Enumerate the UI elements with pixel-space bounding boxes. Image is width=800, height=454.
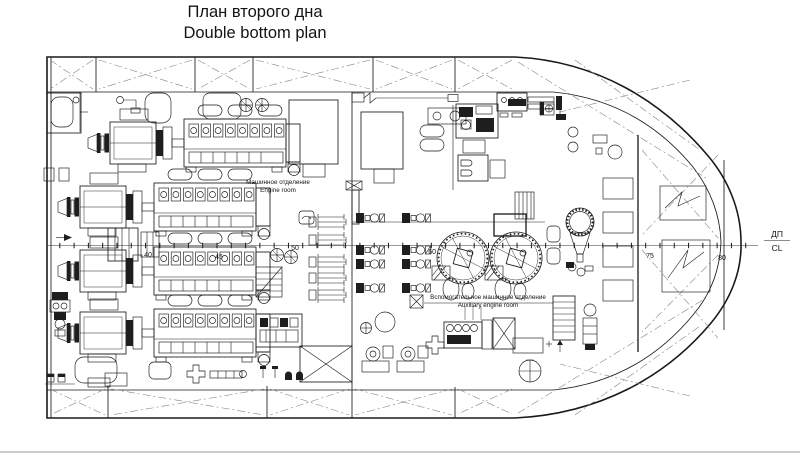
title-english: Double bottom plan [183,24,326,42]
valve-manifold [309,287,346,303]
frame-number: 75 [646,253,654,260]
small-fitting [593,135,607,143]
tank-top-opening [375,312,395,332]
tank-rounded-wide [203,93,241,119]
control-panel [256,314,302,347]
aux-engine-room-label-ru: Вспомогательное машинное отделение [430,294,546,301]
tank-large-2 [361,112,403,183]
pump-motor-set [362,346,393,372]
deck-opening [568,127,578,137]
pump-unit [356,245,385,255]
engine-room-label-ru: Машинное отделение [246,179,310,186]
centerline-label-ru: ДП [771,229,783,239]
void-cell [59,168,69,181]
vent-fan-icon [271,249,284,262]
frame-number: 80 [718,255,726,262]
void-cell [44,168,54,181]
ship-drawing-canvas: План второго дна Double bottom plan [0,0,800,454]
pump-unit [356,259,385,269]
aux-genset-lower [444,318,515,349]
main-engine-3 [58,233,270,304]
tank-x-bracing-top [50,60,512,89]
tank-large-1 [289,100,338,177]
pump-unit [402,213,431,223]
stern-gear-box [47,92,88,133]
bottle-tank [420,139,444,151]
small-fitting [596,148,602,154]
bow-void-cells [603,178,633,301]
vent-fan-icon [240,99,253,112]
small-valve [361,323,372,334]
pump-motor-set [397,346,428,372]
ruler-bar [210,371,242,378]
ladder-engine-room [256,267,282,297]
valve-manifold [309,214,346,230]
frame-number: 60 [428,249,436,256]
separator-drum-1 [432,232,489,284]
centerline-label-en: CL [772,243,783,253]
small-bedplate [105,373,127,386]
bottle-tank [420,125,444,137]
pump-unit [356,283,385,293]
deck-fittings-row [240,366,304,380]
centerline-label: ДП CL [764,229,790,253]
vent-fan-icon [256,99,269,112]
jug-tank [547,248,560,264]
separator-drum-2 [485,232,542,284]
valve-manifold [309,270,346,286]
floor-drain-cross [187,365,205,383]
aux-engine-room-label: Вспомогательное машинное отделение Auxil… [430,294,546,309]
gauge-dial [433,112,441,120]
vertical-pump [583,304,597,350]
floor-drain-cross [426,336,444,354]
hatch-small [410,295,423,308]
hatch-x-braced [300,346,352,382]
tank-rounded-small [145,93,171,123]
sea-chest [515,192,534,219]
drawing-title: План второго дна Double bottom plan [183,3,326,42]
wing-tank-dividers-top [96,57,455,92]
pump-unit [402,283,431,293]
engine-room-label-en: Engine room [260,187,296,194]
aux-engine-room-label-en: Auxiliary engine room [458,302,519,309]
main-engine-1 [88,105,300,176]
rounded-fitting [149,362,171,379]
stern-bracket [45,374,75,384]
echo-sounder-box-1 [660,186,706,220]
gauge-dial [450,111,460,121]
tank-x-bracing-bottom [50,389,512,415]
settling-tub [75,357,117,383]
hull-structure [47,57,741,418]
double-bottom-plan-screenshot: План второго дна Double bottom plan [0,0,800,454]
pump-unit [402,259,431,269]
inner-bottom-boundary [47,92,721,390]
main-engine-2 [58,169,270,240]
deck-opening [568,142,578,152]
gauge-round-box [299,211,314,224]
pump-unit [356,213,385,223]
bow-tank-marks [518,60,718,415]
manhole-cover [519,360,541,382]
ladder-aux-room [546,296,575,352]
tub-foot [88,378,110,387]
valve-manifold [309,254,346,270]
clamp-device [508,96,566,120]
jug-tank [547,226,560,242]
hawse-pipe [566,208,594,276]
main-engine-4 [58,295,270,366]
long-tool-fitting [352,93,458,103]
vent-fan-icon [285,251,298,264]
pump-unit [402,245,431,255]
bed-plate [513,338,543,353]
title-russian: План второго дна [188,3,324,21]
deck-opening [608,145,622,159]
frame-number: 40 [144,252,152,259]
cooler-unit [458,155,505,181]
aux-genset-upper [456,104,498,153]
